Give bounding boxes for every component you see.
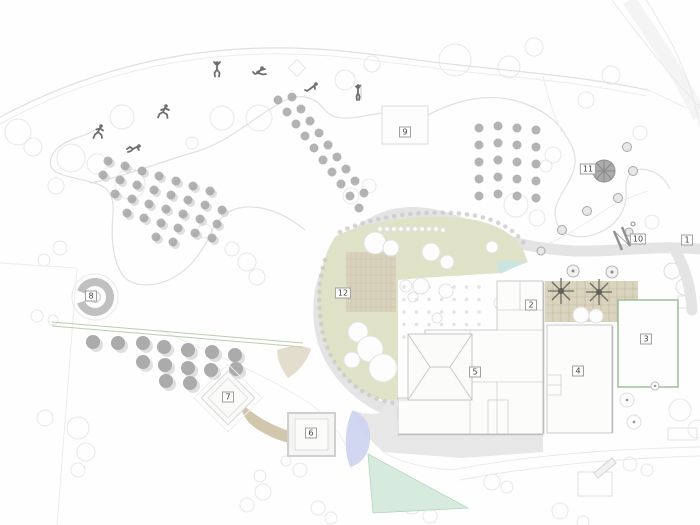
tan-patch: [277, 346, 311, 378]
athlete-figure: [94, 124, 104, 138]
main-house: [398, 281, 544, 435]
path-shrubs: [537, 143, 638, 256]
marker-label-7: 7: [222, 392, 234, 403]
green-slope: [368, 454, 468, 513]
water-feature: [496, 261, 528, 274]
marker-label-8: 8: [85, 291, 97, 302]
marker-label-2: 2: [525, 300, 537, 311]
access-road: [612, 0, 700, 126]
property-lines: [0, 263, 77, 525]
athlete-figure: [214, 61, 220, 76]
athlete-figure: [158, 104, 169, 118]
diamond-tree-icon: [289, 60, 306, 77]
athlete-figure: [253, 66, 266, 74]
outbuilding: [547, 325, 613, 433]
marker-label-10: 10: [630, 234, 646, 245]
athlete-figure: [356, 84, 361, 100]
athlete-figures: [94, 61, 362, 152]
marker-label-6: 6: [305, 428, 317, 439]
marker-label-1: 1: [681, 235, 693, 246]
orchard-west: [99, 157, 230, 250]
marker-label-12: 12: [335, 288, 351, 299]
garden-terrace: [346, 252, 396, 312]
plot-9-square: [382, 106, 428, 144]
site-plan: 1 2 3 4 5 6 7 8 9 10 11 12: [0, 0, 700, 525]
shed-outline: [668, 428, 697, 440]
athlete-figure: [305, 82, 318, 91]
marker-label-9: 9: [399, 127, 411, 138]
marker-label-4: 4: [572, 366, 584, 377]
feature-tree-11: [593, 160, 615, 182]
marker-label-3: 3: [640, 334, 652, 345]
marker-label-11: 11: [580, 164, 596, 175]
orchard-diagonal: [274, 93, 369, 213]
site-plan-drawing: [0, 0, 700, 525]
play-structure: [578, 458, 616, 496]
hip-roof: [408, 334, 472, 400]
athlete-figure: [127, 144, 141, 152]
marker-label-5: 5: [469, 367, 481, 378]
orchard-central: [475, 122, 541, 203]
walled-court: [618, 300, 678, 390]
